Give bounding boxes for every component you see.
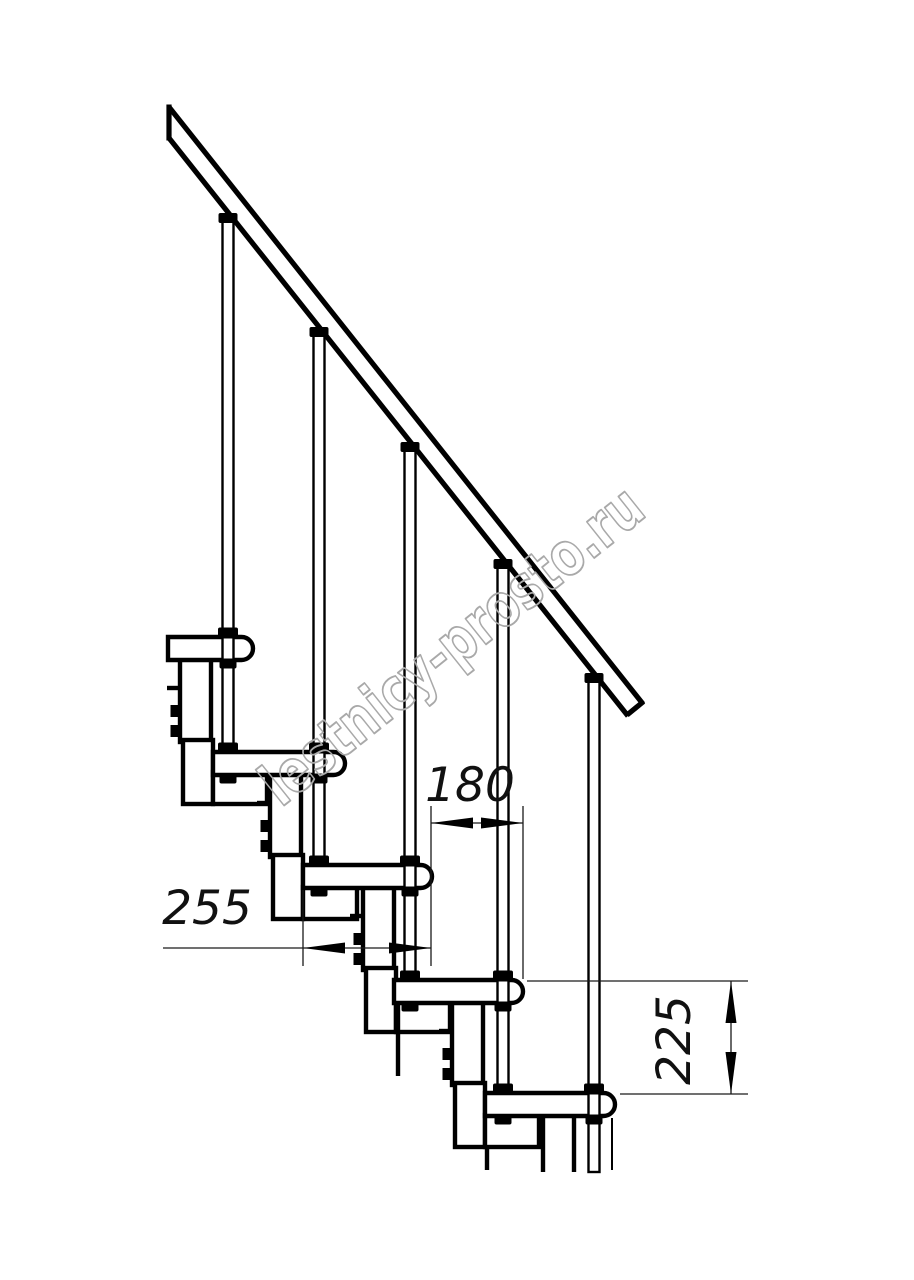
drawing-canvas: 180 255 225 lestnicy-prosto.ru: [0, 0, 914, 1280]
dimension-225: 225: [527, 981, 748, 1094]
support-module-1: [167, 656, 267, 804]
baluster-1: [223, 220, 234, 752]
tread-1: [168, 637, 253, 660]
dimension-225-label: 225: [647, 995, 702, 1085]
support-module-4: [439, 999, 539, 1147]
baluster-5: [589, 680, 600, 1172]
dimension-255-label: 255: [162, 881, 252, 936]
dimension-180-label: 180: [425, 758, 515, 813]
stair-technical-drawing: 180 255 225 lestnicy-prosto.ru: [0, 0, 914, 1280]
